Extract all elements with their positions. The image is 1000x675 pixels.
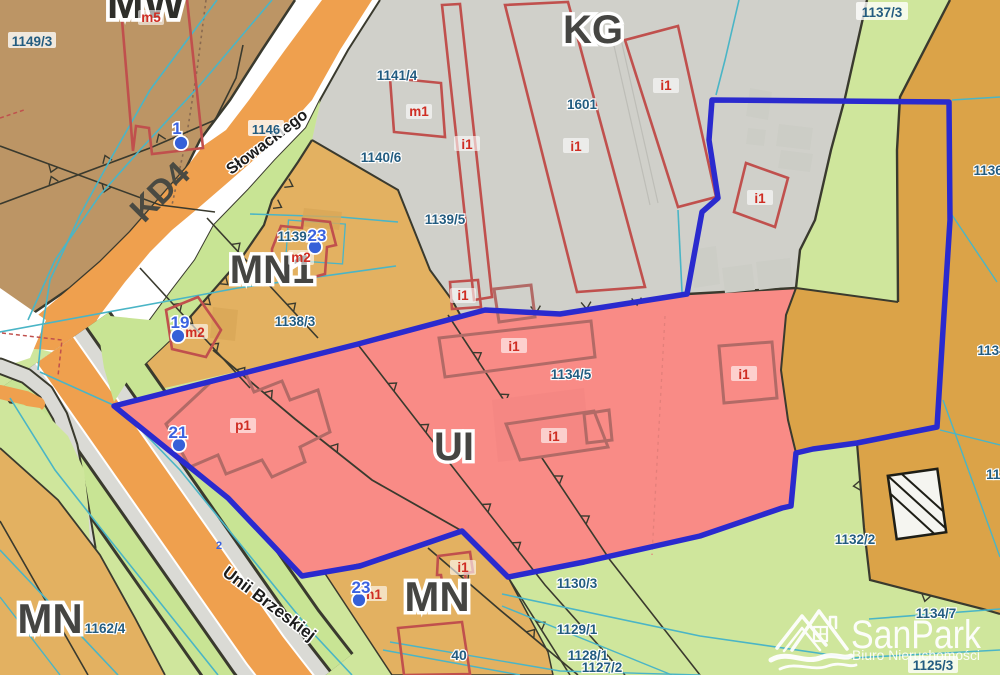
svg-text:1132/2: 1132/2: [835, 532, 876, 547]
svg-text:i1: i1: [461, 137, 473, 152]
svg-text:i1: i1: [738, 367, 750, 382]
svg-text:40: 40: [451, 647, 467, 663]
svg-text:19: 19: [171, 313, 190, 332]
svg-text:i1: i1: [570, 139, 582, 154]
svg-text:21: 21: [169, 423, 188, 442]
svg-text:1601: 1601: [567, 97, 598, 112]
svg-text:1127/2: 1127/2: [582, 660, 623, 675]
svg-text:1162/4: 1162/4: [85, 621, 126, 636]
svg-text:1137/3: 1137/3: [862, 5, 903, 20]
svg-text:2: 2: [216, 540, 222, 552]
svg-text:1139/: 1139/: [277, 229, 310, 244]
svg-text:1: 1: [172, 119, 181, 138]
svg-text:UI: UI: [434, 425, 474, 469]
svg-text:1140/6: 1140/6: [361, 150, 402, 165]
svg-text:m2: m2: [291, 250, 311, 265]
svg-text:1139/5: 1139/5: [425, 212, 466, 227]
svg-text:1141/4: 1141/4: [377, 68, 418, 83]
svg-text:1136/: 1136/: [973, 163, 1000, 178]
svg-text:1146: 1146: [252, 122, 280, 137]
svg-text:i1: i1: [660, 78, 672, 93]
svg-text:i1: i1: [457, 288, 469, 303]
svg-text:1149/3: 1149/3: [12, 34, 53, 49]
svg-text:1138/3: 1138/3: [275, 314, 316, 329]
svg-text:m5: m5: [141, 10, 161, 25]
svg-text:i1: i1: [754, 191, 766, 206]
svg-text:1130/3: 1130/3: [557, 576, 598, 591]
svg-text:m1: m1: [409, 104, 429, 119]
svg-text:23: 23: [352, 578, 371, 597]
svg-text:i1: i1: [548, 429, 560, 444]
svg-text:1134/5: 1134/5: [551, 367, 592, 382]
svg-text:i1: i1: [457, 560, 469, 575]
svg-text:MN: MN: [17, 595, 82, 642]
svg-text:Biuro Nieruchomości: Biuro Nieruchomości: [852, 647, 980, 663]
svg-text:MN: MN: [404, 573, 469, 620]
svg-text:i1: i1: [508, 339, 520, 354]
svg-text:113: 113: [986, 467, 1000, 482]
svg-text:KG: KG: [563, 8, 623, 52]
svg-text:p1: p1: [235, 418, 251, 433]
svg-text:1129/1: 1129/1: [557, 622, 598, 637]
svg-text:1134: 1134: [977, 343, 1000, 358]
svg-text:23: 23: [308, 226, 327, 245]
